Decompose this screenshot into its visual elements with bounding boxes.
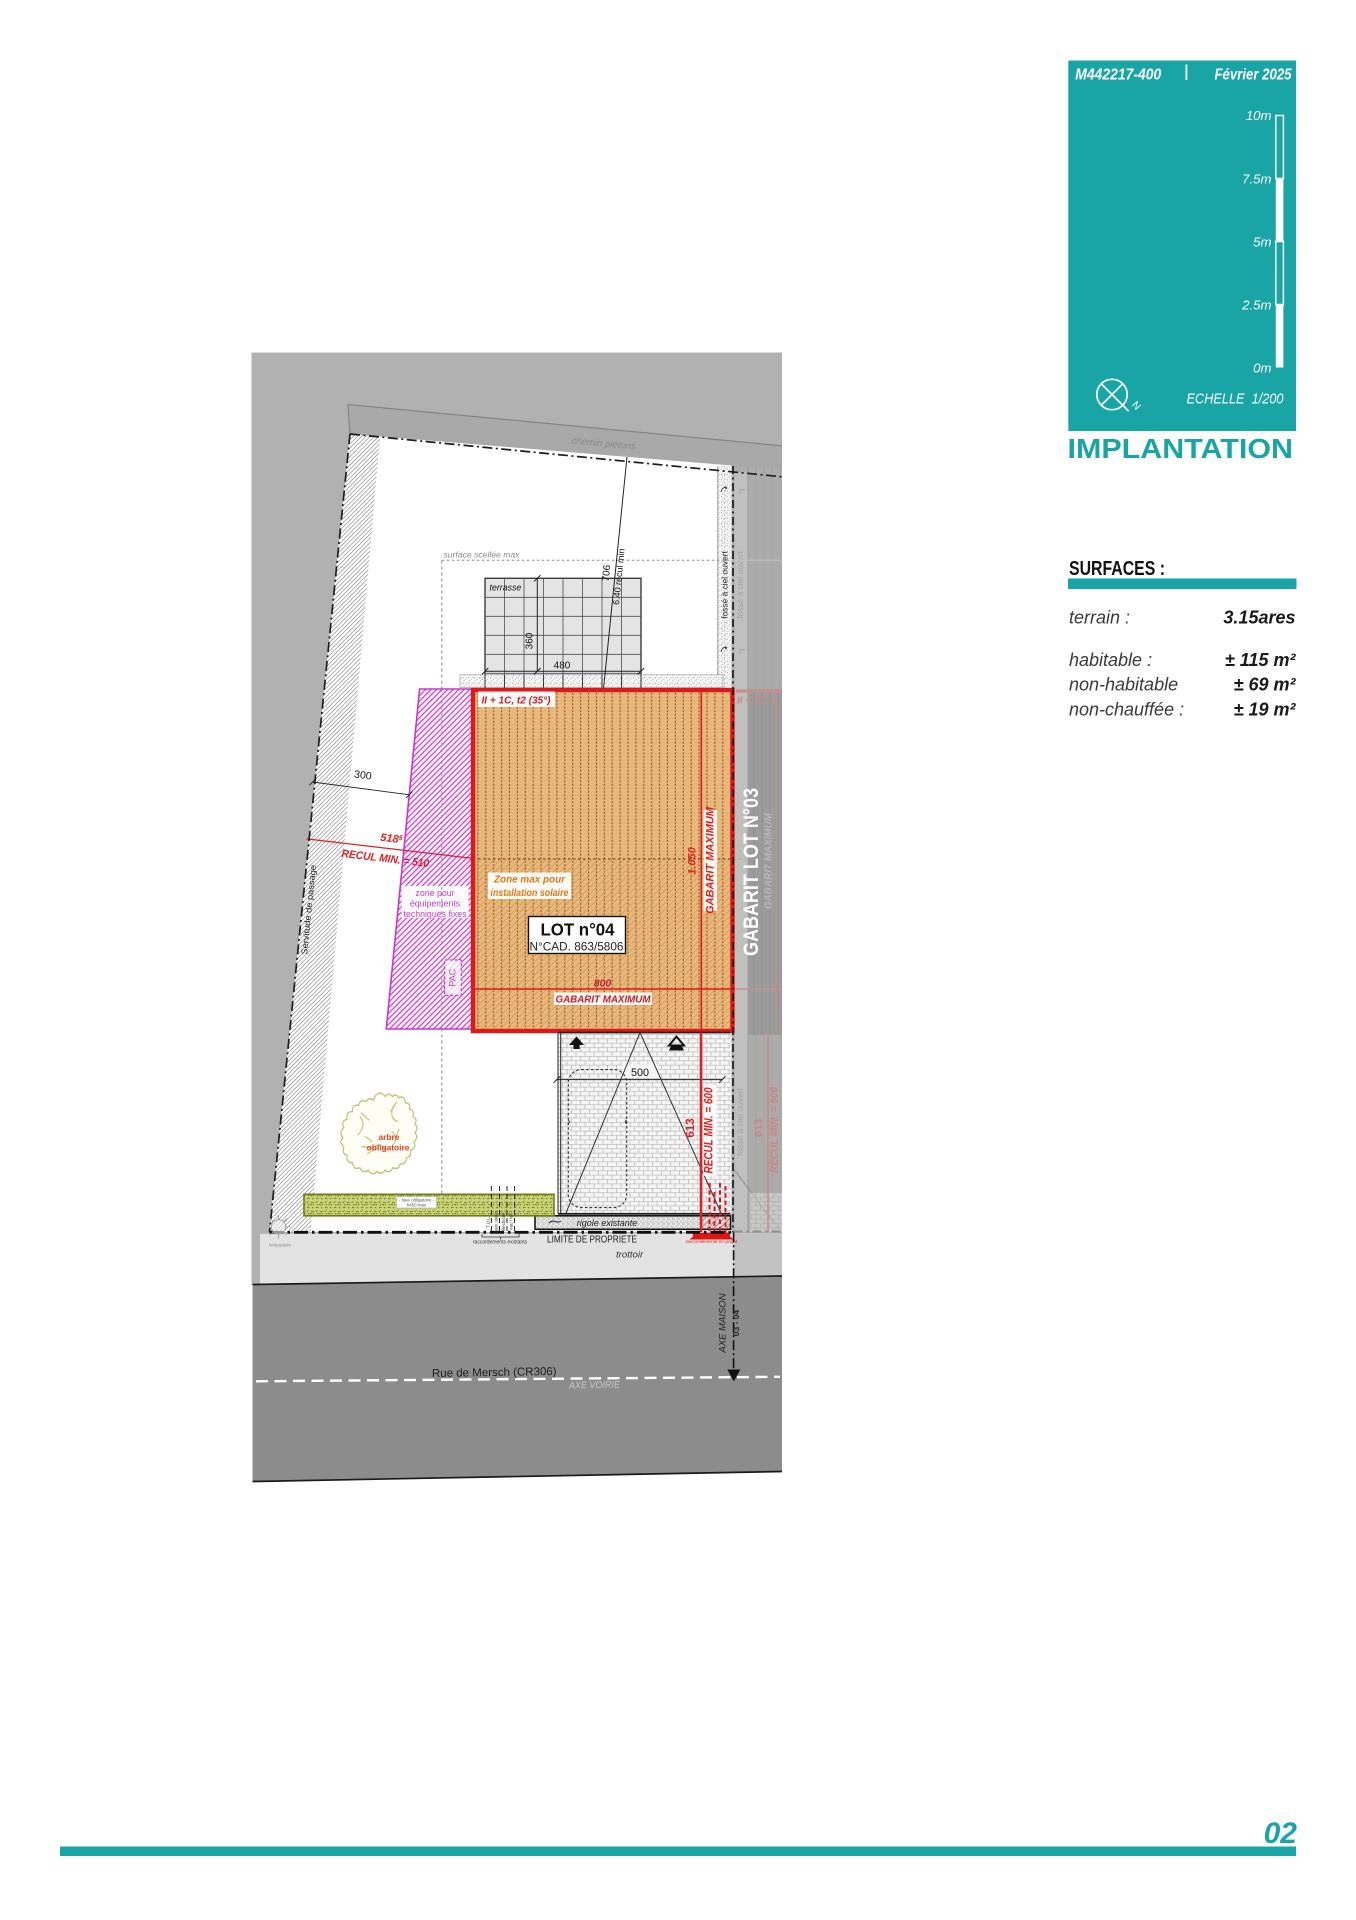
svg-text:Zone max pour: Zone max pour xyxy=(493,875,566,886)
svg-text:II + 1C, t: II + 1C, t xyxy=(737,696,776,707)
svg-text:II + 1C, t2 (35°): II + 1C, t2 (35°) xyxy=(482,696,551,707)
svg-text:installation solaire: installation solaire xyxy=(491,888,569,899)
svg-text:613: 613 xyxy=(753,1119,765,1137)
svg-text:03 - 04: 03 - 04 xyxy=(731,1309,741,1336)
svg-text:LOT n°04: LOT n°04 xyxy=(541,920,615,940)
svg-text:équipements: équipements xyxy=(410,899,461,909)
svg-text:10m: 10m xyxy=(1246,108,1272,123)
svg-text:non-habitable: non-habitable xyxy=(1069,675,1178,695)
svg-text:RECUL MIN. = 600: RECUL MIN. = 600 xyxy=(704,1087,716,1174)
svg-text:h450 max: h450 max xyxy=(407,1203,427,1208)
svg-text:N°CAD. 863/5806: N°CAD. 863/5806 xyxy=(530,940,624,954)
svg-text:fossé à ciel ouvert: fossé à ciel ouvert xyxy=(735,551,745,619)
svg-text:fossé à ciel ouvert: fossé à ciel ouvert xyxy=(735,1088,745,1156)
svg-text:0m: 0m xyxy=(1253,361,1271,376)
svg-text:GABARIT MAXIMUM: GABARIT MAXIMUM xyxy=(556,994,651,1006)
svg-text:± 115 m²: ± 115 m² xyxy=(1225,650,1297,670)
svg-text:613: 613 xyxy=(685,1118,697,1137)
svg-text:5m: 5m xyxy=(1253,235,1271,250)
svg-text:zone pour: zone pour xyxy=(415,888,454,898)
svg-text:raccordements en projet: raccordements en projet xyxy=(686,1239,738,1245)
svg-text:rigole existante: rigole existante xyxy=(577,1218,638,1228)
svg-text:eaux usées: eaux usées xyxy=(494,1210,499,1233)
svg-text:arbre: arbre xyxy=(379,1132,400,1142)
svg-text:raccordements existants: raccordements existants xyxy=(473,1240,528,1246)
svg-text:SURFACES :: SURFACES : xyxy=(1069,558,1165,580)
svg-text:T.U.L.: T.U.L. xyxy=(486,1216,491,1227)
svg-text:300: 300 xyxy=(353,768,372,782)
svg-text:GABARIT MAXIMUM: GABARIT MAXIMUM xyxy=(705,806,717,914)
svg-text:obligatoire: obligatoire xyxy=(367,1143,410,1153)
svg-text:1.050: 1.050 xyxy=(687,846,699,874)
svg-text:techniques fixes: techniques fixes xyxy=(403,909,467,919)
svg-text:2.5m: 2.5m xyxy=(1241,298,1271,313)
svg-text:M442217-400: M442217-400 xyxy=(1075,67,1161,84)
svg-text:Février 2025: Février 2025 xyxy=(1215,67,1293,84)
svg-text:GABARIT LOT N°03: GABARIT LOT N°03 xyxy=(740,788,763,956)
svg-text:surface scellée max: surface scellée max xyxy=(444,550,521,560)
svg-text:terrasse: terrasse xyxy=(490,583,522,593)
svg-text:706: 706 xyxy=(601,564,614,582)
svg-text:480: 480 xyxy=(554,660,571,671)
svg-text:Rue de Mersch (CR306): Rue de Mersch (CR306) xyxy=(432,1366,557,1380)
svg-text:électricité: électricité xyxy=(501,1212,506,1231)
svg-text:7.5m: 7.5m xyxy=(1242,172,1271,187)
svg-text:terrain :: terrain : xyxy=(1069,608,1130,628)
svg-text:habitable :: habitable : xyxy=(1069,650,1152,670)
svg-text:trottoir: trottoir xyxy=(616,1250,644,1261)
svg-text:ECHELLE 1/200: ECHELLE 1/200 xyxy=(1187,391,1285,408)
svg-text:IMPLANTATION: IMPLANTATION xyxy=(1068,433,1294,464)
svg-text:GABARIT MAXIMUM: GABARIT MAXIMUM xyxy=(763,813,775,909)
svg-text:360: 360 xyxy=(525,632,536,649)
svg-text:800: 800 xyxy=(594,978,612,990)
svg-text:500: 500 xyxy=(631,1067,649,1079)
svg-text:AXE VOIRIE: AXE VOIRIE xyxy=(568,1380,621,1392)
svg-text:eau / tél: eau / tél xyxy=(509,1214,514,1230)
svg-text:RECUL MIN. = 600: RECUL MIN. = 600 xyxy=(769,1086,781,1173)
svg-text:± 19 m²: ± 19 m² xyxy=(1234,700,1297,720)
svg-text:± 69 m²: ± 69 m² xyxy=(1234,675,1297,695)
svg-text:AXE MAISON: AXE MAISON xyxy=(718,1293,729,1353)
svg-text:LIMITE DE PROPRIETE: LIMITE DE PROPRIETE xyxy=(547,1235,637,1246)
svg-text:fossé à ciel ouvert: fossé à ciel ouvert xyxy=(720,551,730,619)
svg-text:non-chauffée :: non-chauffée : xyxy=(1069,700,1184,720)
svg-text:3.15ares: 3.15ares xyxy=(1223,608,1295,628)
svg-text:02: 02 xyxy=(1264,1817,1298,1850)
svg-text:lampadaire: lampadaire xyxy=(269,1243,291,1248)
svg-text:PAC: PAC xyxy=(448,968,458,986)
